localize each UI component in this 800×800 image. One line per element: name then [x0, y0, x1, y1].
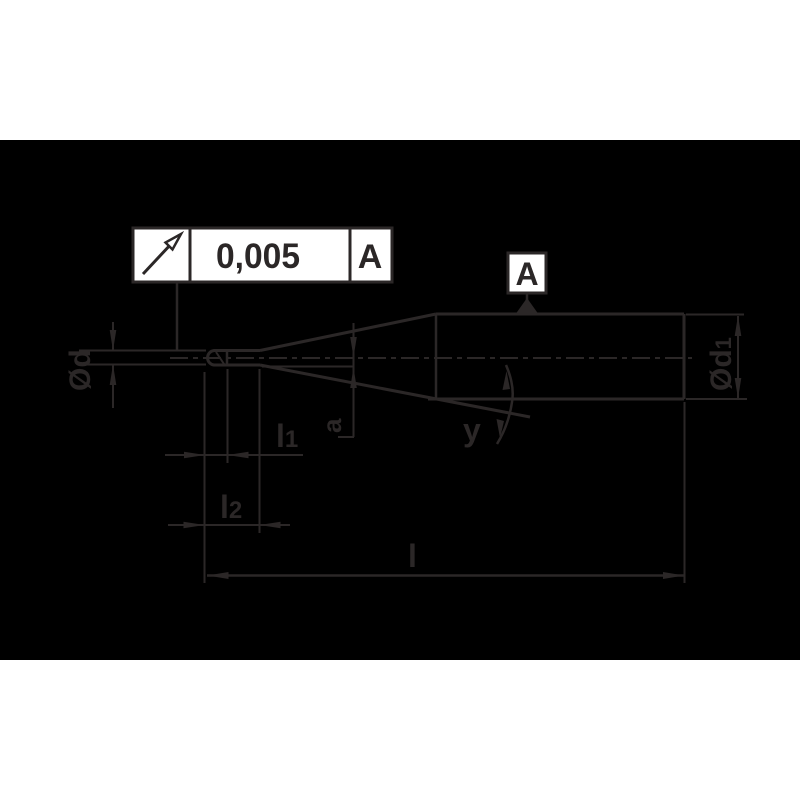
- tolerance-value: 0,005: [216, 237, 300, 276]
- technical-drawing: 0,005 A A Ød a: [0, 0, 800, 800]
- taper-angle-label: y: [463, 412, 481, 448]
- drawing-canvas: 0,005 A A Ød a: [0, 0, 800, 800]
- datum-label: A: [515, 256, 538, 292]
- tip-diameter-label: Ød: [64, 349, 97, 391]
- overall-length-label: l: [408, 538, 417, 574]
- fcf-datum-reference: A: [358, 238, 383, 276]
- neck-offset-label: a: [317, 418, 347, 433]
